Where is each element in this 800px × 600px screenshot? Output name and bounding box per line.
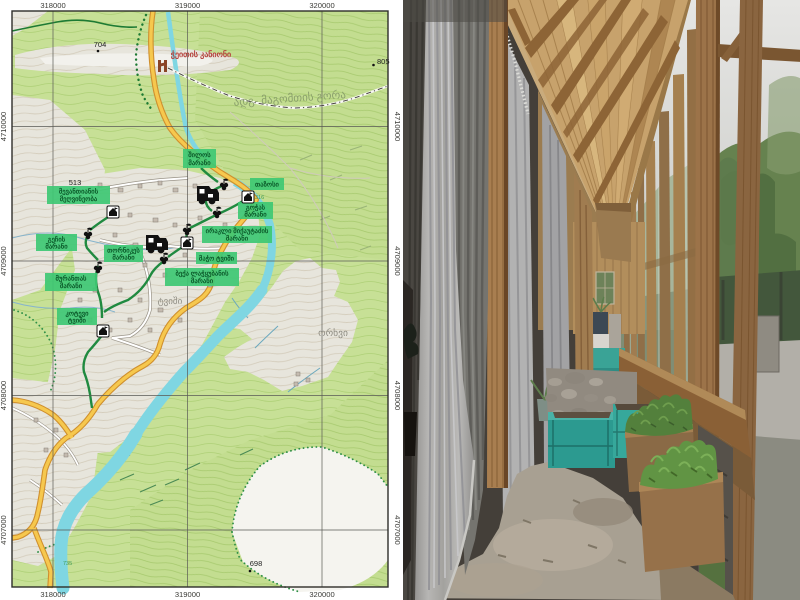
svg-text:704: 704: [94, 40, 107, 49]
svg-text:მურანთას: მურანთას: [55, 275, 87, 283]
svg-text:კოტევი: კოტევი: [65, 311, 89, 318]
svg-text:4710000: 4710000: [393, 112, 402, 142]
svg-text:მაჭო ტვიში: მაჭო ტვიში: [199, 255, 235, 263]
svg-text:319000: 319000: [175, 590, 200, 599]
svg-text:ტვიში: ტვიში: [68, 317, 87, 325]
svg-text:ირაკლი მიქაუტაძის: ირაკლი მიქაუტაძის: [206, 227, 269, 235]
svg-text:მარანი: მარანი: [226, 235, 249, 243]
svg-text:გეჩის: გეჩის: [48, 236, 66, 244]
svg-text:320000: 320000: [309, 590, 334, 599]
svg-text:ბექა ლაჭყუბანის: ბექა ლაჭყუბანის: [175, 270, 229, 278]
svg-text:316: 316: [255, 195, 264, 201]
svg-text:მარანი: მარანი: [188, 159, 211, 167]
svg-text:318000: 318000: [40, 590, 65, 599]
svg-text:735: 735: [63, 561, 72, 567]
svg-text:4710000: 4710000: [0, 112, 8, 142]
svg-text:მარანი: მარანი: [60, 282, 83, 290]
svg-text:320000: 320000: [309, 1, 334, 10]
svg-text:513: 513: [69, 178, 82, 187]
svg-text:გოჭას: გოჭას: [246, 204, 266, 212]
svg-text:4708000: 4708000: [0, 381, 8, 411]
svg-text:მარანი: მარანი: [45, 243, 68, 251]
svg-text:805: 805: [377, 57, 390, 66]
svg-text:4709000: 4709000: [0, 246, 8, 276]
svg-text:318000: 318000: [40, 1, 65, 10]
svg-text:ტვიში: ტვიში: [158, 296, 183, 307]
svg-text:4707000: 4707000: [393, 515, 402, 545]
svg-text:698: 698: [250, 559, 263, 568]
svg-text:მევანთიანის: მევანთიანის: [59, 188, 99, 196]
svg-text:მარანი: მარანი: [244, 211, 267, 219]
svg-text:ორხვი: ორხვი: [318, 327, 348, 339]
svg-text:4707000: 4707000: [0, 515, 8, 545]
svg-text:319000: 319000: [175, 1, 200, 10]
svg-text:4709000: 4709000: [393, 246, 402, 276]
svg-text:შილოს: შილოს: [188, 151, 211, 159]
svg-text:მეღვინეობა: მეღვინეობა: [60, 195, 98, 203]
svg-text:მარანი: მარანი: [191, 277, 214, 285]
svg-text:მარანი: მარანი: [112, 254, 135, 262]
svg-text:4708000: 4708000: [393, 381, 402, 411]
svg-text:ჭეითის კანიონი: ჭეითის კანიონი: [171, 50, 231, 60]
svg-text:თორნიკეს: თორნიკეს: [107, 247, 140, 255]
svg-text:თაზოსი: თაზოსი: [255, 181, 280, 189]
